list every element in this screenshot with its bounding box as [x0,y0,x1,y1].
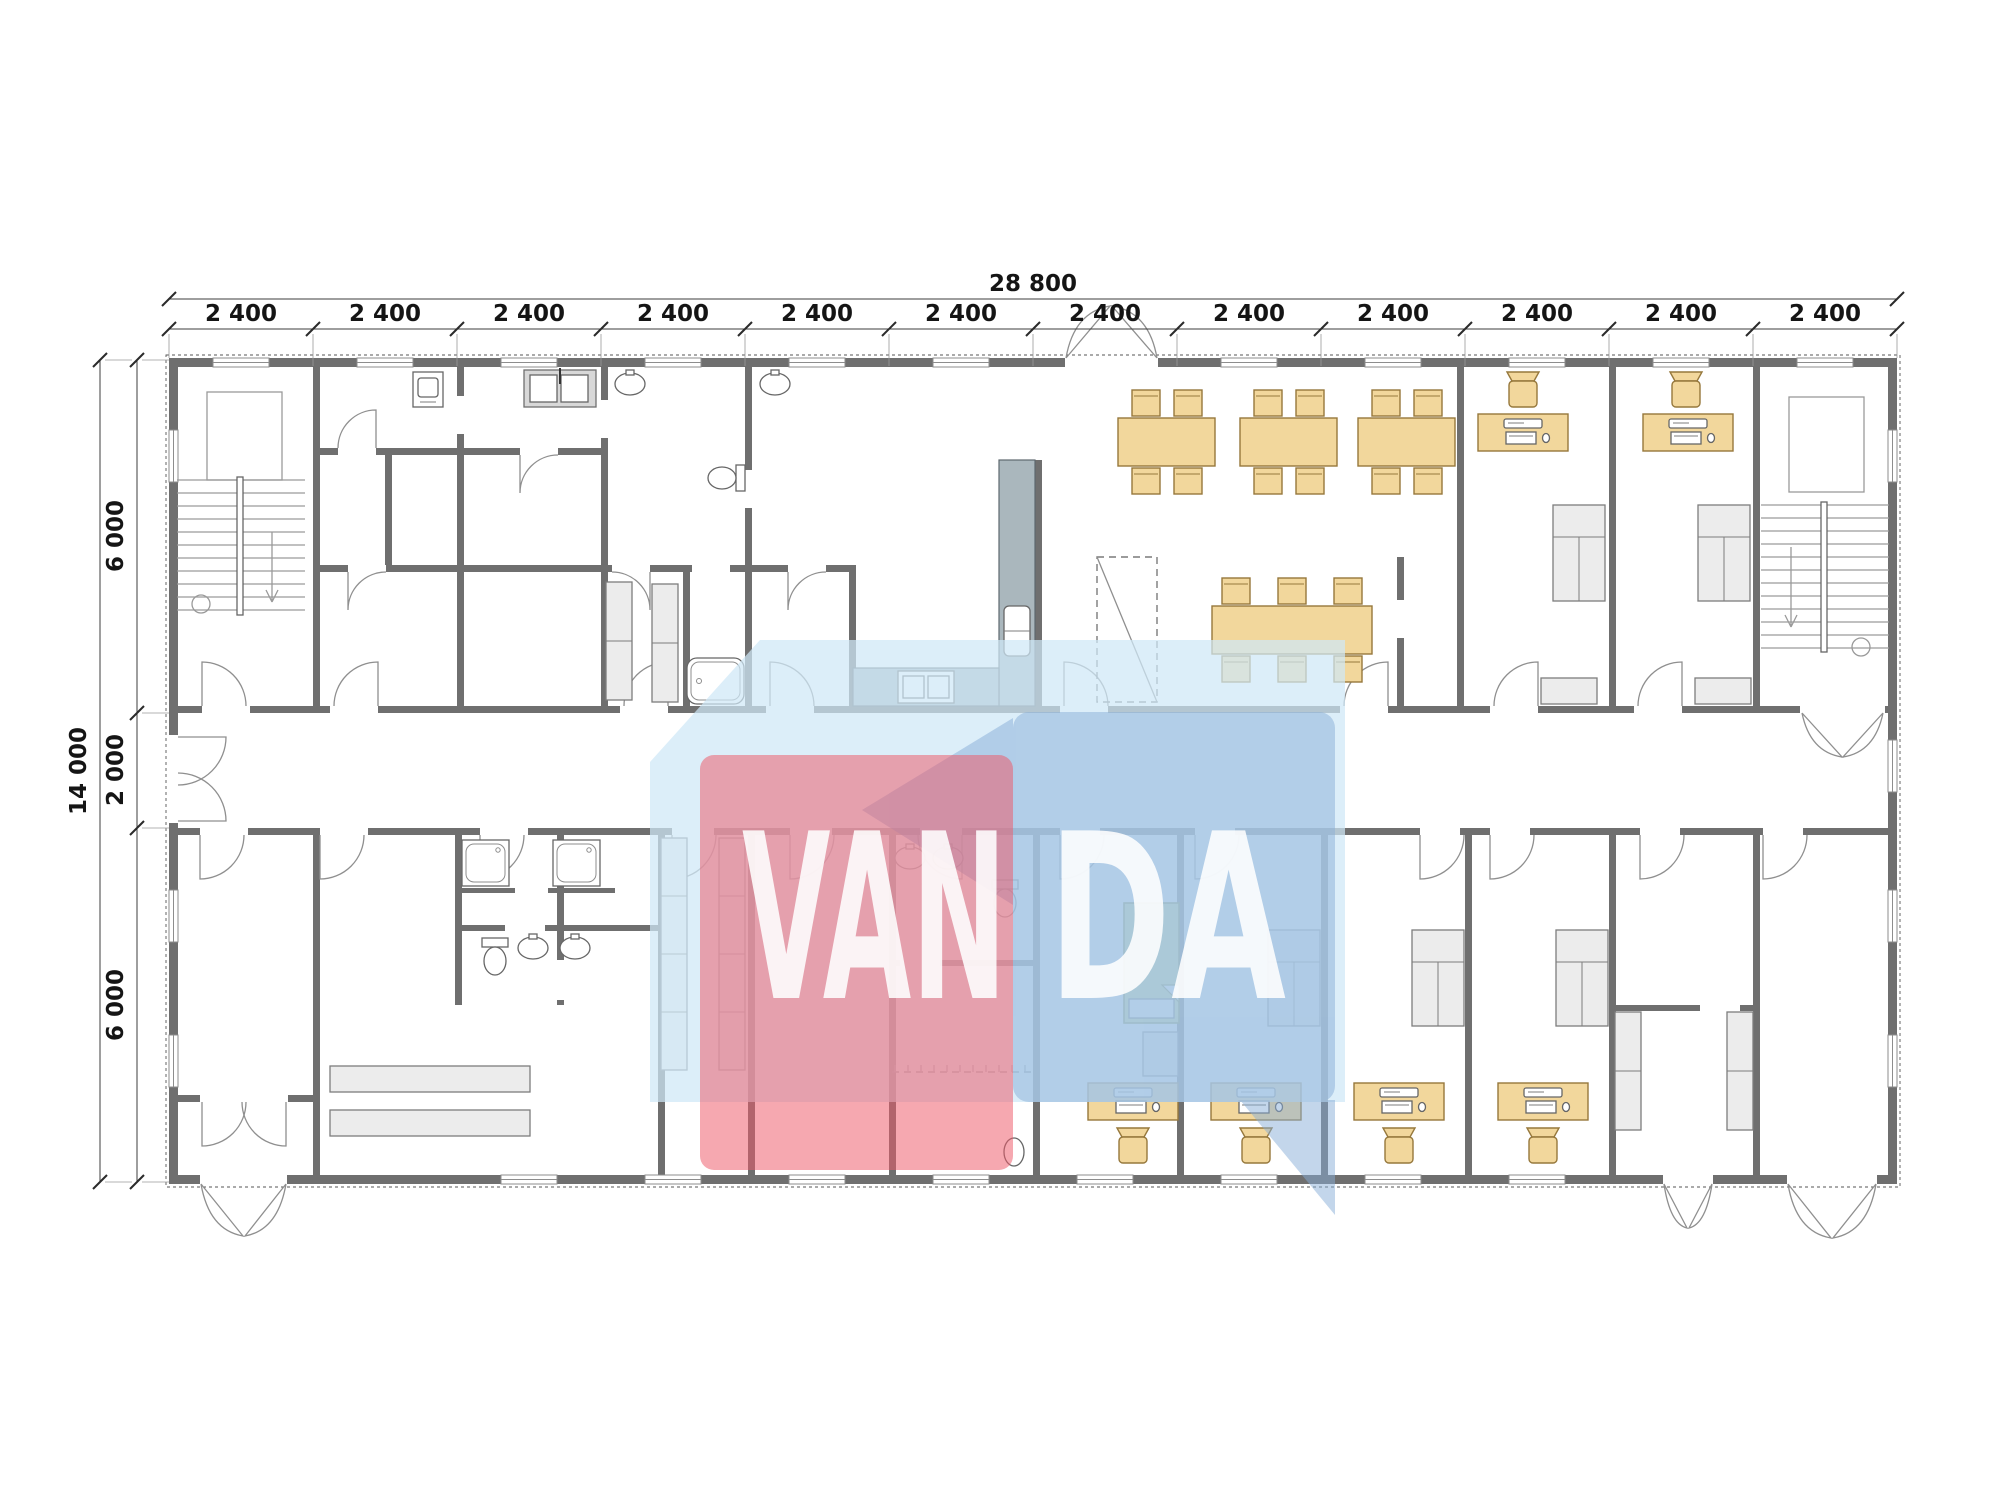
dim-segment-label: 2 400 [637,301,709,327]
window [1653,358,1709,367]
window [933,358,989,367]
window [1365,1175,1421,1184]
window [645,358,701,367]
utility-double-sink [524,368,596,407]
dim-segment-label: 2 400 [1501,301,1573,327]
shelving-unit [1615,1012,1641,1130]
office-workstation [1643,372,1733,451]
wardrobe [1412,930,1464,1026]
wardrobe [1556,930,1608,1026]
dim-segment-label: 2 400 [349,301,421,327]
tall-cabinet [606,582,632,700]
window [1509,1175,1565,1184]
window [169,890,178,942]
window [1888,740,1897,792]
entrance-door-bottom-right [1788,1184,1876,1238]
entrance-door-bottom-left [201,1184,286,1236]
dim-segment-label: 2 400 [1645,301,1717,327]
low-cabinet [1541,678,1597,704]
window [169,430,178,482]
wash-basin [518,934,548,959]
washing-machine [413,372,443,407]
window [1888,1035,1897,1087]
entrance-door-bottom-middle [1664,1184,1712,1228]
shower [462,840,509,886]
window [789,1175,845,1184]
shelving-unit [1727,1012,1753,1130]
window [1888,890,1897,942]
window [169,1035,178,1087]
staircase-left [177,392,305,615]
dim-segment-label: 2 400 [1069,301,1141,327]
shower [553,840,600,886]
staircase-right [1761,397,1889,656]
toilet [482,938,508,975]
window [501,1175,557,1184]
toilet [708,465,745,491]
window [1365,358,1421,367]
office-workstation [1354,1083,1444,1163]
wardrobe [1698,505,1750,601]
office-workstation [1498,1083,1588,1163]
window [789,358,845,367]
dining-table-4-seats [1358,390,1455,494]
dim-segment-label: 2 400 [1789,301,1861,327]
bench [330,1110,530,1136]
wardrobe [1553,505,1605,601]
dining-table-4-seats [1118,390,1215,494]
window [1221,1175,1277,1184]
office-workstation [1478,372,1568,451]
dim-segment-label: 2 400 [781,301,853,327]
bench [330,1066,530,1092]
watermark-text-left: VAN [742,786,1007,1053]
tall-cabinet [652,584,678,702]
dim-segment-label: 2 400 [493,301,565,327]
window [645,1175,701,1184]
low-cabinet [1695,678,1751,704]
window [1797,358,1853,367]
dim-segment-label: 2 400 [205,301,277,327]
window [357,358,413,367]
window [1221,358,1277,367]
window [933,1175,989,1184]
window [501,358,557,367]
dim-segment-label: 2 400 [1213,301,1285,327]
wash-basin [760,370,790,395]
floor-plan-page: VAN DA 28 800 2 400 2 400 2 400 2 400 2 … [0,0,2000,1500]
window [1077,1175,1133,1184]
dim-segment-label: 2 400 [925,301,997,327]
dim-segment-label: 6 000 [103,969,129,1041]
window [213,358,269,367]
watermark-text-right: DA [1048,786,1286,1053]
window [1509,358,1565,367]
dining-table-4-seats [1240,390,1337,494]
dim-segment-label: 6 000 [103,500,129,572]
floor-plan-drawing: VAN DA 28 800 2 400 2 400 2 400 2 400 2 … [0,0,2000,1500]
wash-basin [560,934,590,959]
wash-basin [615,370,645,395]
window [1888,430,1897,482]
dim-segment-label: 2 400 [1357,301,1429,327]
dim-overall-depth: 14 000 [66,727,92,815]
dim-overall-width: 28 800 [989,271,1077,297]
dim-segment-label: 2 000 [103,734,129,806]
